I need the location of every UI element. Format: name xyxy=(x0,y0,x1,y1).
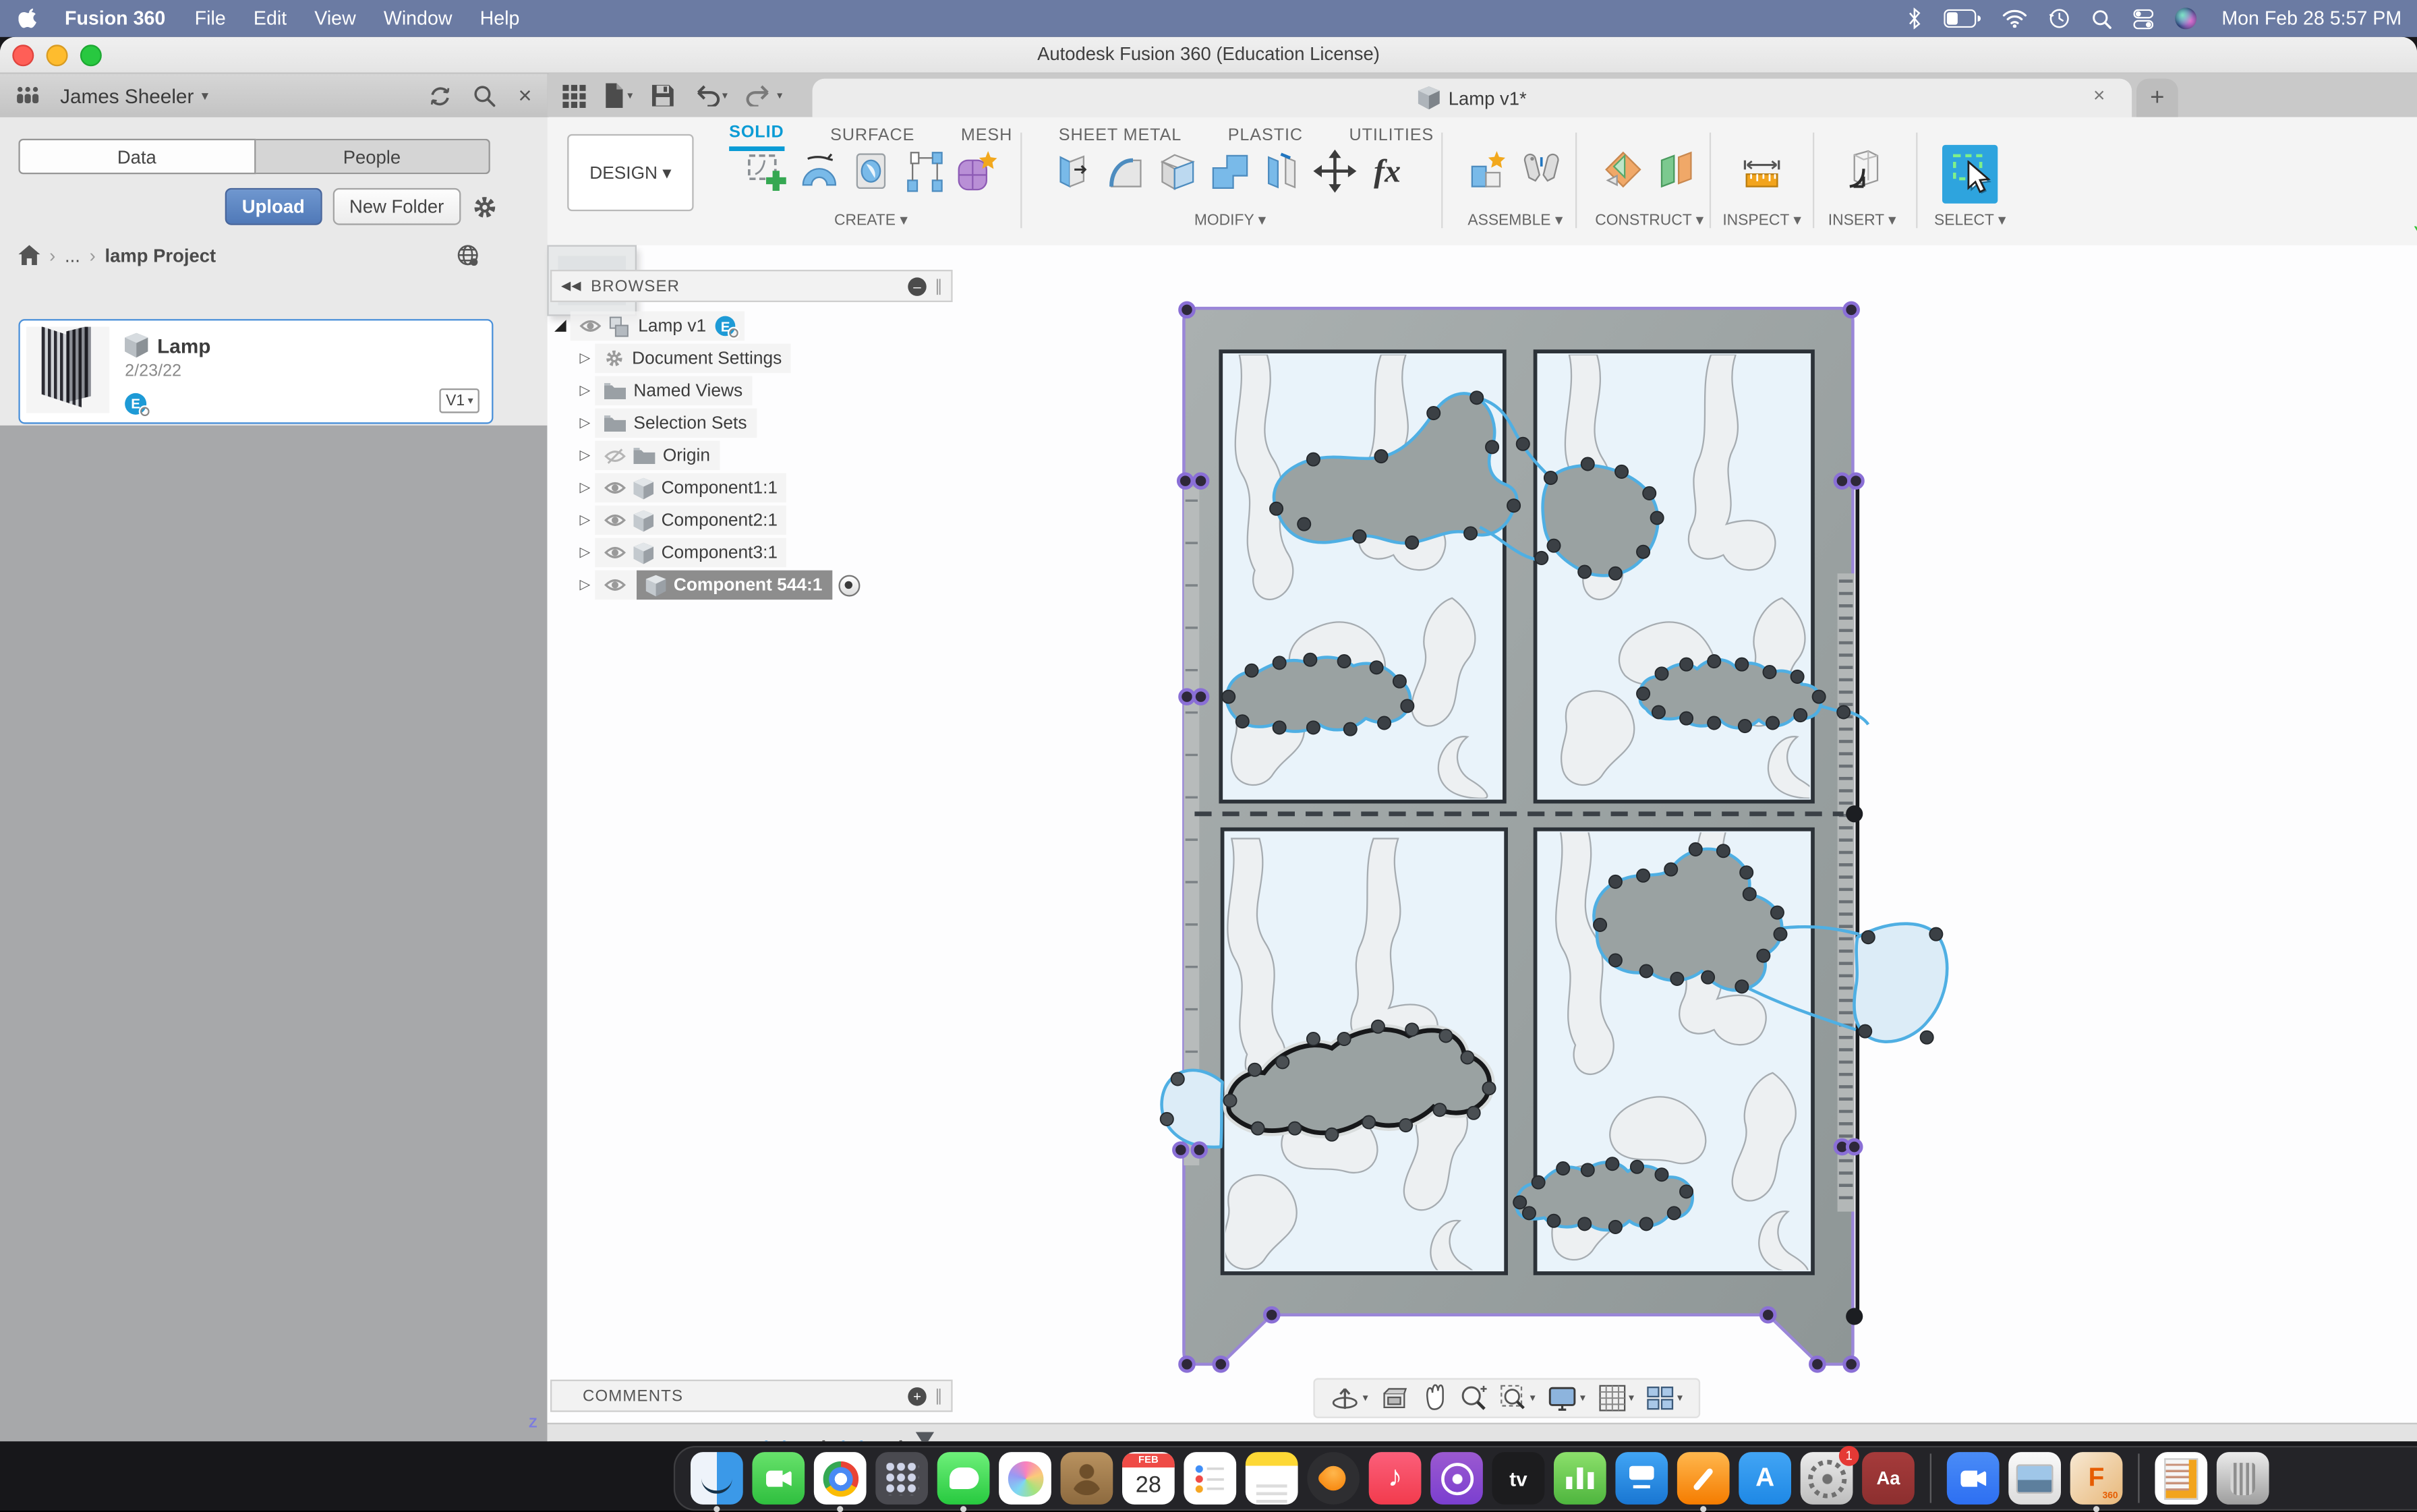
create-form-button[interactable] xyxy=(950,145,1002,198)
panel-minus-icon[interactable]: – xyxy=(908,277,927,295)
canvas-navigation-bar: ▾ ▾ ▾ ▾ ▾ xyxy=(1313,1378,1699,1418)
pan-hand-icon[interactable] xyxy=(1420,1385,1447,1412)
offset-face-button[interactable] xyxy=(1256,145,1309,198)
design-workspace-dropdown[interactable]: DESIGN ▾ xyxy=(567,134,693,211)
expand-triangle-icon[interactable]: ▷ xyxy=(575,577,595,593)
tab-data[interactable]: Data xyxy=(18,139,255,175)
battery-icon[interactable] xyxy=(1944,9,1981,28)
data-panel-header: James Sheeler ▾ × xyxy=(0,74,547,119)
data-settings-gear-icon[interactable] xyxy=(471,194,498,220)
sketch-dimension-button[interactable] xyxy=(897,145,950,198)
dock-fl-studio[interactable] xyxy=(1307,1452,1360,1505)
file-menu-icon[interactable]: ▾ xyxy=(604,83,633,108)
group-construct: CONSTRUCT ▾ xyxy=(1583,145,1716,237)
timeline-bar xyxy=(547,1423,2417,1441)
new-component-button[interactable] xyxy=(1463,145,1515,198)
group-label-construct[interactable]: CONSTRUCT ▾ xyxy=(1583,212,1716,229)
change-parameters-button[interactable]: fx xyxy=(1361,145,1414,198)
dock-document[interactable] xyxy=(2155,1452,2207,1505)
browser-row-document-settings[interactable]: ▷ Document Settings xyxy=(550,342,953,374)
shell-button[interactable] xyxy=(1151,145,1204,198)
new-tab-button[interactable]: + xyxy=(2136,79,2178,117)
browser-panel: ◀◀ BROWSER – ∥ ◢ Lamp v1 E xyxy=(550,270,953,601)
group-insert: INSERT ▾ xyxy=(1817,145,1907,237)
search-icon[interactable] xyxy=(473,84,496,107)
construct-midplane-button[interactable] xyxy=(1650,145,1702,198)
document-tab[interactable]: Lamp v1* xyxy=(813,79,2132,117)
browser-row-component3[interactable]: ▷ Component3:1 xyxy=(550,536,953,569)
timeline-feature-extrude[interactable] xyxy=(879,1439,905,1441)
browser-row-root[interactable]: ◢ Lamp v1 E xyxy=(550,310,953,342)
window-title-bar[interactable]: Autodesk Fusion 360 (Education License) xyxy=(0,37,2417,74)
data-actions: Upload New Folder xyxy=(0,188,508,225)
dock-facetime[interactable] xyxy=(752,1452,805,1505)
comments-header[interactable]: COMMENTS + ∥ xyxy=(550,1380,953,1412)
expand-triangle-icon[interactable]: ▷ xyxy=(575,544,595,561)
comments-title: COMMENTS xyxy=(583,1387,683,1405)
control-center-icon[interactable] xyxy=(2134,9,2154,29)
eye-visible-icon[interactable] xyxy=(604,512,626,529)
cube-icon xyxy=(1418,86,1439,109)
expand-triangle-icon[interactable]: ▷ xyxy=(575,512,595,529)
dock-notes[interactable] xyxy=(1246,1452,1298,1505)
dock-system-preferences[interactable]: 1 xyxy=(1801,1452,1853,1505)
data-people-tabs: Data People xyxy=(18,139,490,175)
browser-row-named-views[interactable]: ▷ Named Views xyxy=(550,374,953,407)
revolve-button[interactable] xyxy=(792,145,845,198)
timeline-feature-extrude[interactable] xyxy=(802,1439,828,1441)
wifi-icon[interactable] xyxy=(2003,9,2028,28)
grid-display-icon[interactable]: ▾ xyxy=(1598,1385,1634,1412)
modeling-canvas[interactable]: ◀◀ BROWSER – ∥ ◢ Lamp v1 E xyxy=(547,245,2417,1424)
dock-chrome[interactable] xyxy=(814,1452,867,1505)
expand-triangle-icon[interactable]: ▷ xyxy=(575,350,595,367)
mouse-cursor xyxy=(1967,161,1992,194)
eye-visible-icon[interactable] xyxy=(579,318,601,335)
shared-badge: E xyxy=(716,316,736,337)
dock-calendar[interactable]: FEB28 xyxy=(1122,1452,1175,1505)
group-label-create[interactable]: CREATE ▾ xyxy=(724,212,1017,229)
apple-menu-icon[interactable] xyxy=(18,7,38,30)
dock-fusion-360[interactable]: F360 xyxy=(2070,1452,2123,1505)
timeline-feature-sketch[interactable] xyxy=(840,1439,867,1441)
dock-finder[interactable] xyxy=(691,1452,743,1505)
activate-component-radio[interactable] xyxy=(838,574,859,595)
group-label-insert[interactable]: INSERT ▾ xyxy=(1817,212,1907,229)
outside-lobe-left xyxy=(1162,1070,1223,1147)
dock-dictionary[interactable]: Aa xyxy=(1862,1452,1915,1505)
orbit-icon[interactable]: ▾ xyxy=(1331,1383,1368,1412)
eye-hidden-icon[interactable] xyxy=(604,446,626,465)
expand-triangle-icon[interactable]: ▷ xyxy=(575,447,595,464)
menu-window[interactable]: Window xyxy=(384,7,453,29)
group-modify: fx MODIFY ▾ xyxy=(1028,145,1432,237)
panel-drag-handle[interactable]: ∥ xyxy=(935,1387,943,1405)
component-cube-icon xyxy=(633,509,653,531)
user-chevron-down-icon[interactable]: ▾ xyxy=(202,87,208,104)
fusion-window: Autodesk Fusion 360 (Education License) … xyxy=(0,37,2417,1441)
move-copy-button[interactable] xyxy=(1309,145,1362,198)
dock-photos[interactable] xyxy=(999,1452,1051,1505)
group-create: CREATE ▾ xyxy=(724,145,1017,237)
ribbon-separator xyxy=(1575,133,1577,229)
close-tab-icon[interactable]: × xyxy=(2093,83,2105,106)
dock-launchpad[interactable] xyxy=(875,1452,928,1505)
save-icon[interactable] xyxy=(651,85,673,107)
upload-button[interactable]: Upload xyxy=(225,188,322,225)
breadcrumb-project[interactable]: lamp Project xyxy=(105,244,216,266)
web-globe-icon[interactable] xyxy=(457,243,479,266)
dock-keynote[interactable] xyxy=(1615,1452,1668,1505)
zoom-icon[interactable] xyxy=(1459,1385,1486,1412)
eye-visible-icon[interactable] xyxy=(604,577,626,593)
undo-icon[interactable]: ▾ xyxy=(691,85,728,107)
timeline-settings-gear-icon[interactable] xyxy=(2377,1440,2402,1441)
collapse-panel-icon[interactable]: ◀◀ xyxy=(561,279,581,293)
dock-separator xyxy=(1930,1453,1931,1503)
group-label-assemble[interactable]: ASSEMBLE ▾ xyxy=(1449,212,1582,229)
axis-y-label: Y xyxy=(2414,223,2417,239)
breadcrumb: › ... › lamp Project xyxy=(18,243,490,266)
ribbon-separator xyxy=(1916,133,1917,229)
ribbon-separator xyxy=(1813,133,1814,229)
dock-preview-document[interactable] xyxy=(2008,1452,2061,1505)
time-machine-icon[interactable] xyxy=(2049,7,2070,29)
folder-icon xyxy=(633,447,655,464)
breadcrumb-chevron-icon: › xyxy=(90,244,96,266)
assembly-icon xyxy=(609,315,631,337)
show-data-panel-grid-icon[interactable] xyxy=(562,84,585,107)
menu-clock[interactable]: Mon Feb 28 5:57 PM xyxy=(2221,7,2401,29)
look-at-icon[interactable] xyxy=(1380,1387,1408,1409)
browser-row-component544-selected[interactable]: ▷ Component 544:1 xyxy=(550,569,953,601)
document-tab-bar: ▾ ▾ ▾ Lamp v1* × + ? xyxy=(547,74,2417,117)
insert-button[interactable] xyxy=(1836,145,1888,198)
dock-trash[interactable] xyxy=(2217,1452,2269,1505)
dock-messages[interactable] xyxy=(937,1452,990,1505)
display-settings-icon[interactable]: ▾ xyxy=(1548,1385,1585,1412)
group-assemble: ASSEMBLE ▾ xyxy=(1449,145,1582,237)
group-label-modify[interactable]: MODIFY ▾ xyxy=(1028,212,1432,229)
lamp-thumbnail xyxy=(26,327,109,413)
new-folder-button[interactable]: New Folder xyxy=(332,188,461,225)
fillet-button[interactable] xyxy=(1099,145,1152,198)
dock-separator xyxy=(2138,1453,2139,1503)
cube-icon xyxy=(125,333,148,358)
data-panel: James Sheeler ▾ × Data People Upload New… xyxy=(0,74,549,1441)
home-icon[interactable] xyxy=(18,245,40,265)
menu-file[interactable]: File xyxy=(195,7,226,29)
browser-header[interactable]: ◀◀ BROWSER – ∥ xyxy=(550,270,953,302)
team-icon xyxy=(16,86,40,105)
panel-drag-handle[interactable]: ∥ xyxy=(935,277,943,295)
dock-reminders[interactable] xyxy=(1184,1452,1236,1505)
browser-row-component1[interactable]: ▷ Component1:1 xyxy=(550,471,953,504)
item-name: Lamp xyxy=(157,334,210,357)
joint-button[interactable] xyxy=(1515,145,1568,198)
user-name[interactable]: James Sheeler xyxy=(60,84,194,107)
browser-root-label: Lamp v1 xyxy=(638,317,706,335)
gear-icon xyxy=(604,349,624,369)
group-inspect: INSPECT ▾ xyxy=(1714,145,1810,237)
hole-button[interactable] xyxy=(845,145,898,198)
item-owner-badge: E xyxy=(125,388,146,416)
browser-row-component2[interactable]: ▷ Component2:1 xyxy=(550,504,953,536)
dock-podcasts[interactable] xyxy=(1430,1452,1483,1505)
expand-triangle-icon[interactable]: ◢ xyxy=(550,318,571,335)
folder-icon xyxy=(604,382,626,399)
eye-visible-icon[interactable] xyxy=(604,479,626,496)
dock-pages[interactable] xyxy=(1677,1452,1730,1505)
browser-row-selection-sets[interactable]: ▷ Selection Sets xyxy=(550,407,953,439)
viewports-icon[interactable]: ▾ xyxy=(1646,1386,1683,1411)
browser-title: BROWSER xyxy=(591,277,680,295)
ribbon-separator xyxy=(1710,133,1711,229)
dock-numbers[interactable] xyxy=(1554,1452,1606,1505)
close-panel-icon[interactable]: × xyxy=(519,82,532,109)
create-sketch-button[interactable] xyxy=(740,145,792,198)
tab-people[interactable]: People xyxy=(255,139,490,175)
ribbon-separator xyxy=(1020,133,1022,229)
group-label-inspect[interactable]: INSPECT ▾ xyxy=(1714,212,1810,229)
expand-triangle-icon[interactable]: ▷ xyxy=(575,415,595,432)
project-item-lamp[interactable]: Lamp 2/23/22 E V1▾ xyxy=(18,319,493,424)
axis-z-label: Z xyxy=(529,1415,537,1430)
expand-triangle-icon[interactable]: ▷ xyxy=(575,382,595,399)
construct-plane-button[interactable] xyxy=(1597,145,1650,198)
ribbon-separator xyxy=(1441,133,1443,229)
breadcrumb-chevron-icon: › xyxy=(49,244,55,266)
item-title-row: Lamp xyxy=(125,333,210,358)
timeline-playhead[interactable] xyxy=(914,1432,935,1441)
folder-icon xyxy=(604,415,626,432)
dock-contacts[interactable] xyxy=(1061,1452,1113,1505)
breadcrumb-ellipsis[interactable]: ... xyxy=(65,244,80,266)
menu-help[interactable]: Help xyxy=(480,7,520,29)
menu-edit[interactable]: Edit xyxy=(254,7,287,29)
data-panel-body: Data People Upload New Folder › ... › la… xyxy=(0,117,547,426)
timeline-feature-sketch[interactable] xyxy=(763,1439,789,1441)
bluetooth-icon[interactable] xyxy=(1907,7,1923,29)
browser-row-origin[interactable]: ▷ Origin xyxy=(550,439,953,471)
document-tab-title: Lamp v1* xyxy=(1449,87,1527,109)
redo-icon[interactable]: ▾ xyxy=(746,85,782,107)
component-cube-icon xyxy=(633,542,653,563)
component-cube-icon xyxy=(646,574,666,595)
window-title: Autodesk Fusion 360 (Education License) xyxy=(0,37,2417,73)
expand-triangle-icon[interactable]: ▷ xyxy=(575,479,595,496)
dock-apple-tv[interactable]: tv xyxy=(1492,1452,1545,1505)
dock: FEB28♪tvA1AaF360 xyxy=(674,1446,2417,1511)
combine-button[interactable] xyxy=(1204,145,1256,198)
measure-button[interactable] xyxy=(1736,145,1788,198)
dock-music[interactable]: ♪ xyxy=(1369,1452,1422,1505)
ribbon-toolbar: SOLID SURFACE MESH SHEET METAL PLASTIC U… xyxy=(547,117,2417,247)
add-comment-plus-icon[interactable]: + xyxy=(908,1387,927,1405)
macos-menu-bar: Fusion 360 File Edit View Window Help Mo… xyxy=(0,0,2417,37)
dock-zoom[interactable] xyxy=(1947,1452,2000,1505)
item-version-dropdown[interactable]: V1▾ xyxy=(440,388,479,413)
menu-app-name[interactable]: Fusion 360 xyxy=(65,7,165,29)
item-date: 2/23/22 xyxy=(125,362,181,380)
zoom-window-icon[interactable]: ▾ xyxy=(1499,1385,1536,1412)
comments-panel: COMMENTS + ∥ xyxy=(550,1380,953,1412)
eye-visible-icon[interactable] xyxy=(604,544,626,561)
group-label-select[interactable]: SELECT ▾ xyxy=(1924,212,2016,229)
siri-icon[interactable] xyxy=(2176,7,2197,29)
press-pull-button[interactable] xyxy=(1047,145,1099,198)
component-cube-icon xyxy=(633,477,653,498)
spotlight-search-icon[interactable] xyxy=(2092,9,2112,29)
menu-view[interactable]: View xyxy=(314,7,355,29)
dock-app-store[interactable]: A xyxy=(1739,1452,1791,1505)
refresh-icon[interactable] xyxy=(429,84,452,107)
